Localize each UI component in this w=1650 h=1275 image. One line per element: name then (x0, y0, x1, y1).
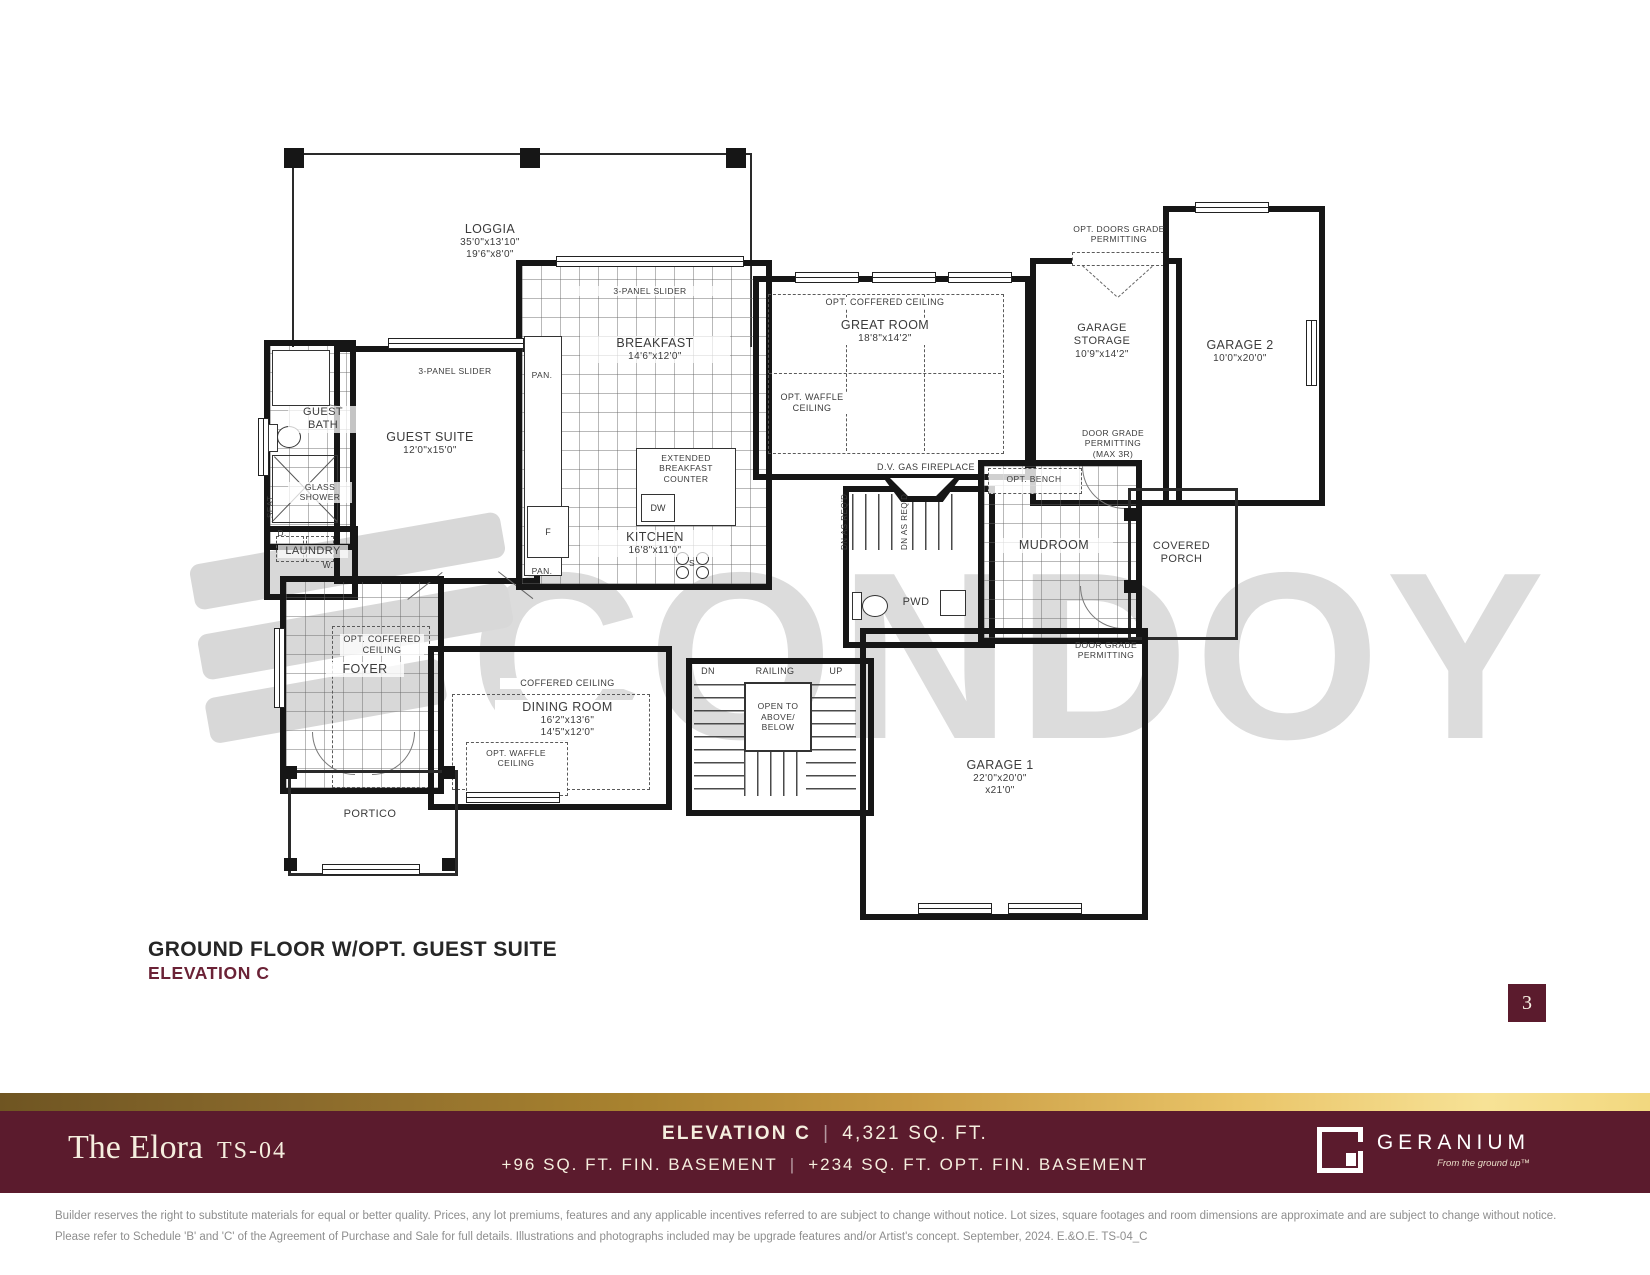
opt-garage-door-opening (1072, 252, 1164, 266)
stove-label: S (686, 558, 698, 568)
portico-post (442, 766, 455, 779)
dining-window (466, 792, 560, 803)
door-grade-label: DOOR GRADE PERMITTING (1062, 640, 1150, 661)
great-room-window (948, 272, 1012, 283)
loggia-column (284, 148, 304, 168)
breakfast-slider-window (556, 256, 744, 267)
fireplace-label: D.V. GAS FIREPLACE (851, 462, 1001, 473)
portico-post (284, 766, 297, 779)
stairs-dn-label: DN (694, 666, 722, 677)
fridge: F (527, 506, 569, 558)
room-portico (288, 770, 458, 876)
basement-stair-flight (852, 494, 904, 550)
pwd-toilet (852, 592, 862, 620)
basement-sqft: +96 SQ. FT. FIN. BASEMENT (502, 1155, 778, 1174)
great-room-label: GREAT ROOM 18'8"x14'2" (810, 318, 960, 345)
sqft-value: 4,321 SQ. FT. (842, 1123, 988, 1144)
dining-waffle-label: OPT. WAFFLE CEILING (470, 748, 562, 769)
portico-window (322, 864, 420, 875)
mudroom-label: MUDROOM (995, 538, 1113, 553)
pwd-sink (940, 590, 966, 616)
opt-bench-label: OPT. BENCH (990, 474, 1078, 484)
elevation-label: ELEVATION C (662, 1123, 811, 1144)
dining-label: DINING ROOM 16'2"x13'6" 14'5"x12'0" (495, 700, 640, 740)
stair-flight-up (806, 684, 856, 792)
stair-open-box: OPEN TO ABOVE/ BELOW (744, 682, 812, 752)
covered-porch-label: COVERED PORCH (1144, 540, 1219, 567)
porch-post (1124, 508, 1137, 521)
dn-as-reqd-label: DN AS REQ'D (900, 490, 909, 554)
portico-post (284, 858, 297, 871)
pwd-label: PWD (892, 596, 940, 609)
kitchen-label: KITCHEN 16'8"x11'0" (580, 530, 730, 557)
stairs-railing-label: RAILING (740, 666, 810, 677)
great-room-window (795, 272, 859, 283)
opt-doors-grade-label: OPT. DOORS GRADE PERMITTING (1068, 224, 1170, 245)
plan-elevation-title: ELEVATION C (148, 963, 270, 984)
great-room-opt-waffle-label: OPT. WAFFLE CEILING (777, 392, 847, 414)
stair-flight-dn (694, 684, 744, 792)
loggia-column (520, 148, 540, 168)
washer-label: W. (322, 560, 334, 570)
separator: | (778, 1155, 808, 1174)
pantry-label: PAN. (525, 370, 559, 380)
loggia-column (726, 148, 746, 168)
loggia-label: LOGGIA 35'0"x13'10" 19'6"x8'0" (400, 222, 580, 262)
portico-label: PORTICO (330, 808, 410, 821)
geranium-logo-icon (1317, 1127, 1363, 1173)
garage-2-window (1306, 320, 1317, 386)
guest-bath-label: GUEST BATH (288, 406, 358, 433)
footer-bar: The Elora TS-04 ELEVATION C|4,321 SQ. FT… (0, 1111, 1650, 1193)
extended-counter-label: EXTENDED BREAKFAST COUNTER (639, 449, 733, 484)
room-guest-suite (334, 346, 540, 584)
brand-lockup: GERANIUM From the ground up™ (1317, 1127, 1530, 1173)
garage-1-front-window (918, 903, 992, 914)
guest-suite-label: GUEST SUITE 12'0"x15'0" (355, 430, 505, 457)
disclaimer-line-2: Please refer to Schedule 'B' and 'C' of … (55, 1227, 1600, 1248)
garage-2-window (1195, 202, 1269, 213)
laundry-label: LAUNDRY (278, 545, 348, 558)
seat-label: SEAT (266, 486, 275, 528)
disclaimer-line-1: Builder reserves the right to substitute… (55, 1206, 1600, 1227)
dn-as-reqd-label: DN AS REQ'D (840, 490, 849, 554)
dryer-label: D. (276, 528, 288, 538)
garage-storage-label: GARAGE STORAGE 10'9"x14'2" (1052, 322, 1152, 361)
brand-tagline: From the ground up™ (1437, 1158, 1530, 1169)
plan-title: GROUND FLOOR W/OPT. GUEST SUITE (148, 938, 557, 962)
foyer-opt-coffered-label: OPT. COFFERED CEILING (340, 634, 424, 656)
foyer-label: FOYER (326, 662, 404, 677)
garage-2-label: GARAGE 2 10'0"x20'0" (1185, 338, 1295, 365)
porch-post (1124, 580, 1137, 593)
garage-1-label: GARAGE 1 22'0"x20'0" x21'0" (930, 758, 1070, 798)
opt-basement-sqft: +234 SQ. FT. OPT. FIN. BASEMENT (808, 1155, 1148, 1174)
great-room-opt-coffered-label: OPT. COFFERED CEILING (815, 297, 955, 308)
bathtub (272, 350, 330, 406)
coffered-grid-line (769, 373, 1001, 374)
garage-1-front-window (1008, 903, 1082, 914)
slider-label-breakfast: 3-PANEL SLIDER (570, 286, 730, 296)
breakfast-label: BREAKFAST 14'6"x12'0" (580, 336, 730, 363)
door-grade-max3r-label: DOOR GRADE PERMITTING (MAX 3R) (1074, 428, 1152, 459)
separator: | (811, 1123, 842, 1144)
disclaimer: Builder reserves the right to substitute… (55, 1206, 1600, 1249)
brand-wordmark: GERANIUM (1377, 1131, 1530, 1155)
glass-shower-label: GLASS SHOWER (288, 482, 352, 503)
slider-label-guest-suite: 3-PANEL SLIDER (390, 366, 520, 376)
dishwasher: DW (641, 494, 675, 522)
page-number-badge: 3 (1508, 984, 1546, 1022)
great-room-window (872, 272, 936, 283)
pantry-label: PAN. (525, 566, 559, 576)
gold-divider-bar (0, 1093, 1650, 1111)
dining-coffered-label: COFFERED CEILING (500, 678, 635, 689)
basement-stair-flight (912, 494, 964, 550)
guest-suite-slider-window (388, 338, 524, 349)
pwd-toilet (862, 595, 888, 617)
portico-post (442, 858, 455, 871)
foyer-window (274, 628, 285, 708)
stair-landing (744, 752, 808, 796)
open-to-above-below-label: OPEN TO ABOVE/ BELOW (749, 701, 807, 732)
stairs-up-label: UP (822, 666, 850, 677)
floor-plan: LOGGIA 35'0"x13'10" 19'6"x8'0" 3-PANEL S… (0, 0, 1650, 1275)
